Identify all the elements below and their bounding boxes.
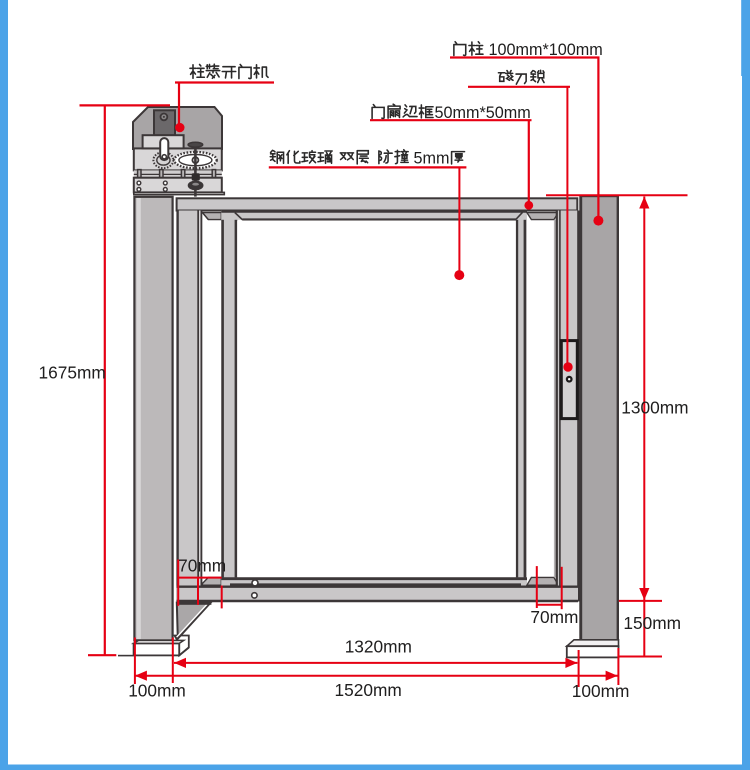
- svg-text:70mm: 70mm: [530, 607, 578, 627]
- svg-text:150mm: 150mm: [623, 613, 681, 633]
- svg-text:1320mm: 1320mm: [345, 637, 412, 657]
- svg-text:1300mm: 1300mm: [621, 397, 688, 417]
- svg-text:5mm: 5mm: [414, 150, 450, 168]
- svg-text:100mm*100mm: 100mm*100mm: [489, 41, 603, 59]
- svg-text:100mm: 100mm: [572, 681, 630, 701]
- svg-text:70mm: 70mm: [178, 555, 226, 575]
- svg-text:1520mm: 1520mm: [335, 680, 402, 700]
- svg-text:100mm: 100mm: [128, 681, 186, 701]
- svg-text:1675mm: 1675mm: [39, 362, 106, 382]
- svg-text:50mm*50mm: 50mm*50mm: [435, 104, 531, 122]
